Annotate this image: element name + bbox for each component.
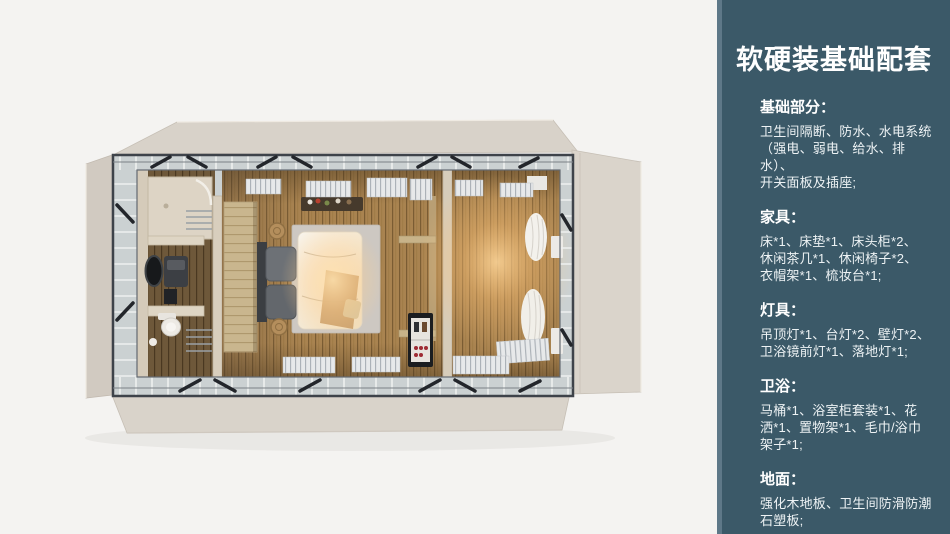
shell-left-wall [86, 155, 112, 398]
rattan-stool [269, 223, 285, 239]
slatted-bench [453, 356, 509, 374]
toilet-roll [149, 338, 157, 346]
curtain [521, 289, 545, 345]
floor-lamp-glow [419, 174, 575, 350]
partition-shelf [148, 306, 204, 316]
rattan-stool [271, 319, 287, 335]
section-body: 卫生间隔断、防水、水电系统 （强电、弱电、给水、排水）、 开关面板及插座; [760, 123, 936, 191]
shell-top-wall [115, 120, 578, 154]
spec-sidebar: 软硬装基础配套 基础部分： 卫生间隔断、防水、水电系统 （强电、弱电、给水、排水… [717, 0, 950, 534]
section-heading: 基础部分： [760, 98, 936, 117]
section-body: 马桶*1、浴室柜套装*1、花 洒*1、置物架*1、毛巾/浴巾 架子*1; [760, 402, 936, 453]
section-heading: 卫浴： [760, 377, 936, 396]
bathroom-partition-wall [213, 196, 222, 377]
section-basics: 基础部分： 卫生间隔断、防水、水电系统 （强电、弱电、给水、排水）、 开关面板及… [760, 98, 936, 191]
slide: 软硬装基础配套 基础部分： 卫生间隔断、防水、水电系统 （强电、弱电、给水、排水… [0, 0, 950, 534]
shell-bottom-wall [112, 393, 570, 433]
section-body: 强化木地板、卫生间防滑防潮 石塑板; [760, 495, 936, 529]
floorplan-svg [0, 0, 717, 534]
shower-drain [164, 204, 169, 209]
bedroom [222, 170, 452, 377]
bath-stool [164, 289, 177, 304]
spec-sections: 基础部分： 卫生间隔断、防水、水电系统 （强电、弱电、给水、排水）、 开关面板及… [722, 76, 950, 529]
wash-basin [167, 260, 185, 270]
section-flooring: 地面： 强化木地板、卫生间防滑防潮 石塑板; [760, 470, 936, 529]
vanity-counter [148, 236, 204, 245]
section-heading: 灯具： [760, 301, 936, 320]
section-body: 吊顶灯*1、台灯*2、壁灯*2、 卫浴镜前灯*1、落地灯*1; [760, 326, 936, 360]
bathroom [137, 170, 222, 377]
section-furniture: 家具： 床*1、床垫*1、床头柜*2、 休闲茶几*1、休闲椅子*2、 衣帽架*1… [760, 208, 936, 284]
section-heading: 地面： [760, 470, 936, 489]
room-render [0, 0, 717, 534]
section-body: 床*1、床垫*1、床头柜*2、 休闲茶几*1、休闲椅子*2、 衣帽架*1、梳妆台… [760, 233, 936, 284]
vanity-mirror [146, 256, 163, 286]
wall-shelf [301, 197, 363, 211]
sidebar-title: 软硬装基础配套 [724, 44, 944, 76]
shell-right-wall [572, 150, 641, 394]
section-lighting: 灯具： 吊顶灯*1、台灯*2、壁灯*2、 卫浴镜前灯*1、落地灯*1; [760, 301, 936, 360]
bedside-lamp-glow [281, 222, 385, 338]
section-heading: 家具： [760, 208, 936, 227]
section-sanitary: 卫浴： 马桶*1、浴室柜套装*1、花 洒*1、置物架*1、毛巾/浴巾 架子*1; [760, 377, 936, 453]
headboard-panel [224, 202, 257, 352]
minibar-cabinet [408, 313, 433, 367]
